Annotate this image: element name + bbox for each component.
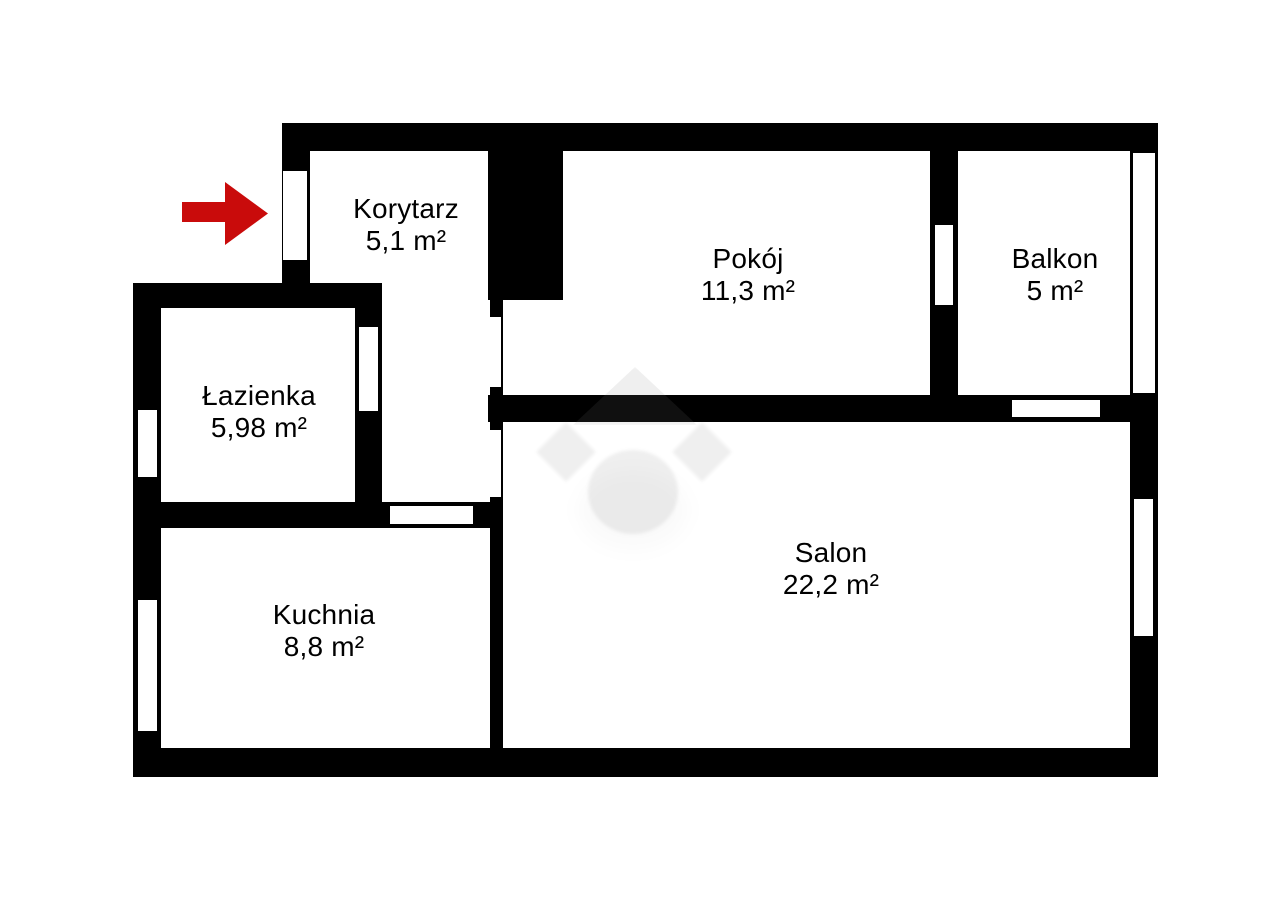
room-area: 5 m² [945,275,1165,307]
door-kuchnia [388,504,475,526]
watermark-diamond-left [536,422,595,481]
room-label-balkon: Balkon 5 m² [945,243,1165,307]
wall-top [282,123,1158,151]
room-area: 11,3 m² [638,275,858,307]
floor-plan-canvas: Korytarz 5,1 m² Pokój 11,3 m² Balkon 5 m… [0,0,1269,900]
room-name: Korytarz [296,193,516,225]
room-area: 8,8 m² [214,631,434,663]
watermark-circle [588,450,678,534]
window-kuchnia [136,598,159,733]
room-area: 5,1 m² [296,225,516,257]
room-area: 5,98 m² [149,412,369,444]
room-label-salon: Salon 22,2 m² [721,537,941,601]
watermark-diamond-right [672,422,731,481]
window-salon-balkon [1010,398,1102,419]
room-label-pokoj: Pokój 11,3 m² [638,243,858,307]
entrance-arrow-head [225,182,268,245]
room-label-lazienka: Łazienka 5,98 m² [149,380,369,444]
room-name: Kuchnia [214,599,434,631]
room-name: Balkon [945,243,1165,275]
room-area: 22,2 m² [721,569,941,601]
room-name: Salon [721,537,941,569]
wall-lazienka-top [133,283,382,308]
room-name: Pokój [638,243,858,275]
room-label-korytarz: Korytarz 5,1 m² [296,193,516,257]
room-name: Łazienka [149,380,369,412]
room-label-kuchnia: Kuchnia 8,8 m² [214,599,434,663]
window-salon [1132,497,1155,638]
door-pokoj [490,317,501,387]
wall-bottom [133,748,1158,777]
door-salon [490,430,501,497]
entrance-arrow-shaft [182,202,226,222]
